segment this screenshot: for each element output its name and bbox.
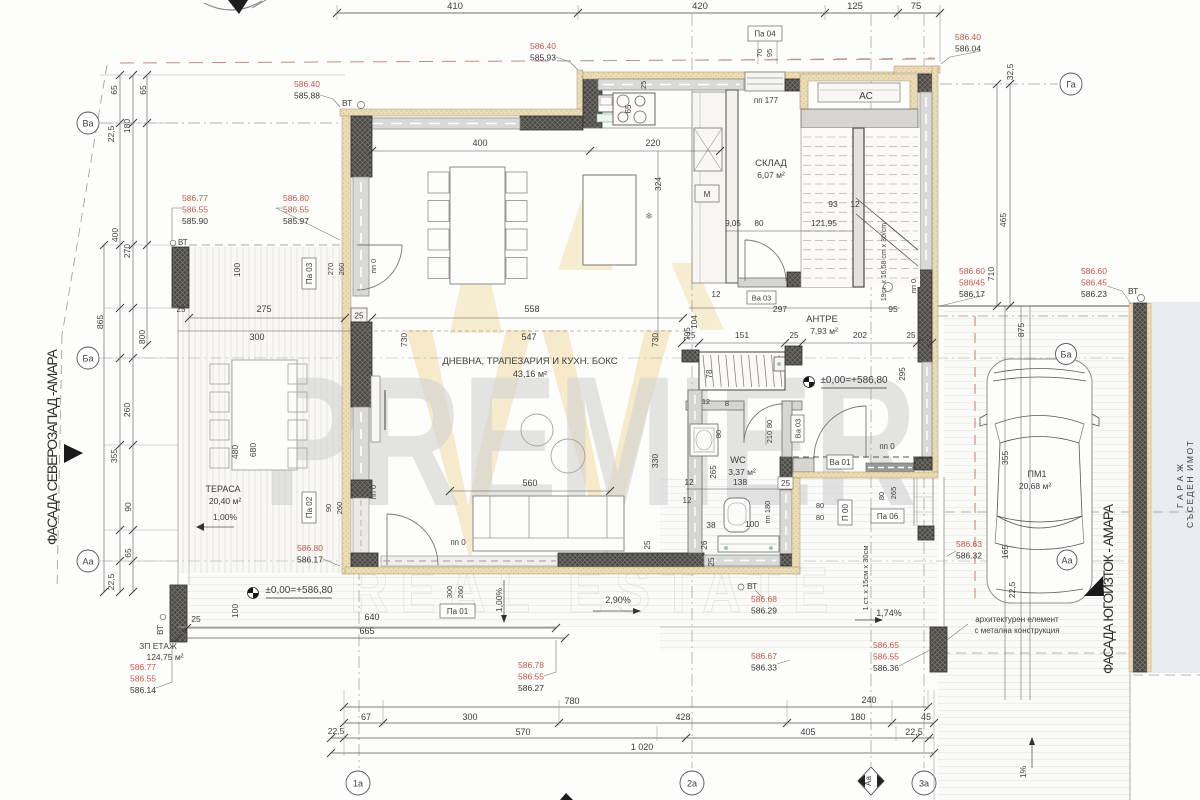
svg-text:300: 300 xyxy=(445,586,454,599)
svg-text:пп 0: пп 0 xyxy=(450,538,466,547)
svg-text:586.77: 586.77 xyxy=(130,662,156,672)
svg-text:12: 12 xyxy=(683,496,692,505)
svg-text:19ст. x 16,58 cm x 30/cm: 19ст. x 16,58 cm x 30/cm xyxy=(881,223,888,301)
svg-text:80: 80 xyxy=(714,430,723,438)
svg-text:270: 270 xyxy=(326,263,335,276)
svg-text:Па 04: Па 04 xyxy=(754,30,776,39)
svg-text:25: 25 xyxy=(790,331,799,340)
svg-text:25: 25 xyxy=(177,305,186,314)
svg-text:ФАСАДА СЕВЕРОЗАПАД -АМАРА: ФАСАДА СЕВЕРОЗАПАД -АМАРА xyxy=(44,348,60,545)
svg-text:586.80: 586.80 xyxy=(283,193,309,203)
svg-text:9,05: 9,05 xyxy=(725,219,741,228)
svg-text:80: 80 xyxy=(755,219,764,228)
svg-text:АС: АС xyxy=(859,91,873,102)
svg-text:пп 0: пп 0 xyxy=(369,259,378,273)
svg-text:Па 02: Па 02 xyxy=(305,496,314,518)
svg-text:124,75 м²: 124,75 м² xyxy=(146,652,183,662)
svg-text:121,95: 121,95 xyxy=(811,218,837,228)
svg-text:Ва 03: Ва 03 xyxy=(794,419,803,439)
svg-text:ДНЕВНА, ТРАПЕЗАРИЯ И КУХН. БОК: ДНЕВНА, ТРАПЕЗАРИЯ И КУХН. БОКС xyxy=(442,356,617,367)
svg-text:7,93 м²: 7,93 м² xyxy=(810,326,838,336)
svg-text:22,5: 22,5 xyxy=(1007,581,1017,598)
svg-text:586.40: 586.40 xyxy=(294,79,320,89)
svg-text:586.68: 586.68 xyxy=(751,594,777,604)
svg-text:Аа: Аа xyxy=(1061,556,1072,566)
svg-text:22,5: 22,5 xyxy=(328,726,345,736)
svg-text:405: 405 xyxy=(800,727,815,737)
svg-text:8: 8 xyxy=(725,399,729,408)
svg-text:260: 260 xyxy=(337,263,346,276)
svg-text:270: 270 xyxy=(122,244,132,258)
svg-text:26: 26 xyxy=(700,540,709,549)
svg-text:640: 640 xyxy=(364,612,379,622)
svg-text:пп 180: пп 180 xyxy=(763,501,772,524)
svg-text:2а: 2а xyxy=(687,779,697,789)
svg-text:22,5: 22,5 xyxy=(106,573,116,590)
svg-text:70: 70 xyxy=(755,49,764,57)
svg-text:25: 25 xyxy=(191,614,201,624)
svg-text:265: 265 xyxy=(889,487,898,500)
svg-text:220: 220 xyxy=(645,138,660,148)
svg-text:100: 100 xyxy=(232,263,242,277)
svg-text:586.33: 586.33 xyxy=(751,663,777,673)
svg-text:1,00%: 1,00% xyxy=(213,512,238,522)
svg-text:СКЛАД: СКЛАД xyxy=(755,158,787,169)
svg-text:585.88: 585.88 xyxy=(294,91,320,101)
svg-text:Ва: Ва xyxy=(82,119,93,129)
svg-text:80: 80 xyxy=(816,513,824,522)
svg-text:20,40 м²: 20,40 м² xyxy=(209,496,241,506)
svg-text:±0,00=+586,80: ±0,00=+586,80 xyxy=(265,585,333,596)
svg-text:25: 25 xyxy=(639,81,648,89)
svg-text:6,07 м²: 6,07 м² xyxy=(757,170,785,180)
svg-text:Ба: Ба xyxy=(83,354,94,364)
svg-text:586.80: 586.80 xyxy=(297,543,323,553)
svg-text:480: 480 xyxy=(230,445,240,459)
svg-text:355: 355 xyxy=(1000,451,1010,465)
svg-text:558: 558 xyxy=(524,304,539,314)
svg-text:Аа: Аа xyxy=(864,776,873,786)
svg-text:Ва 03: Ва 03 xyxy=(752,294,772,303)
svg-text:586.14: 586.14 xyxy=(130,685,156,695)
svg-text:75: 75 xyxy=(911,1,922,12)
svg-text:165: 165 xyxy=(1000,545,1010,559)
svg-text:570: 570 xyxy=(515,727,530,737)
svg-text:324: 324 xyxy=(653,177,663,191)
svg-text:297: 297 xyxy=(773,304,787,314)
svg-text:586.63: 586.63 xyxy=(956,539,982,549)
svg-text:420: 420 xyxy=(692,1,708,12)
svg-text:586.60: 586.60 xyxy=(1081,266,1107,276)
svg-text:22,5: 22,5 xyxy=(106,125,116,142)
svg-text:151: 151 xyxy=(735,330,749,340)
svg-text:ВТ: ВТ xyxy=(342,98,352,108)
svg-text:800: 800 xyxy=(137,330,147,344)
svg-text:275: 275 xyxy=(256,304,271,314)
svg-text:ТЕРАСА: ТЕРАСА xyxy=(205,484,240,494)
svg-text:265: 265 xyxy=(709,465,718,479)
svg-text:25: 25 xyxy=(907,331,916,340)
svg-text:780: 780 xyxy=(564,696,579,706)
svg-text:586.55: 586.55 xyxy=(182,205,208,215)
svg-text:М: М xyxy=(704,190,711,199)
svg-text:Па 03: Па 03 xyxy=(305,262,314,284)
svg-text:Га: Га xyxy=(1066,80,1075,90)
svg-text:12: 12 xyxy=(850,199,860,209)
svg-text:1,74%: 1,74% xyxy=(876,608,902,618)
svg-text:WC: WC xyxy=(730,455,746,466)
svg-text:586.55: 586.55 xyxy=(518,672,544,682)
svg-text:80: 80 xyxy=(816,501,824,510)
svg-text:80: 80 xyxy=(877,492,886,500)
svg-text:25: 25 xyxy=(355,312,364,321)
svg-text:93: 93 xyxy=(828,199,838,209)
svg-text:586.67: 586.67 xyxy=(751,651,777,661)
svg-text:1%: 1% xyxy=(1018,765,1028,778)
svg-text:300: 300 xyxy=(249,332,264,342)
svg-text:586.36: 586.36 xyxy=(873,663,899,673)
svg-text:125: 125 xyxy=(847,1,863,12)
svg-text:Па 06: Па 06 xyxy=(877,512,899,521)
svg-text:32,5: 32,5 xyxy=(1005,63,1015,80)
svg-text:пп 0: пп 0 xyxy=(909,279,918,293)
svg-text:45: 45 xyxy=(921,712,931,722)
svg-text:100: 100 xyxy=(230,604,240,618)
svg-text:пп 177: пп 177 xyxy=(754,96,779,105)
svg-text:586.17: 586.17 xyxy=(297,555,323,565)
svg-text:260: 260 xyxy=(122,403,132,417)
svg-text:547: 547 xyxy=(521,332,536,342)
svg-text:38: 38 xyxy=(706,520,716,530)
svg-text:43,16 м²: 43,16 м² xyxy=(513,369,547,379)
svg-text:260: 260 xyxy=(456,586,465,599)
svg-text:12: 12 xyxy=(702,397,710,406)
svg-text:586.40: 586.40 xyxy=(530,41,556,51)
svg-text:95: 95 xyxy=(888,304,898,314)
svg-text:ВТ: ВТ xyxy=(747,581,757,591)
svg-text:730: 730 xyxy=(399,333,409,347)
svg-text:355: 355 xyxy=(109,449,119,463)
svg-text:1а: 1а xyxy=(353,779,363,789)
svg-text:330: 330 xyxy=(650,454,660,468)
svg-text:65: 65 xyxy=(123,548,133,558)
svg-text:2,90%: 2,90% xyxy=(605,595,631,605)
svg-text:586.55: 586.55 xyxy=(873,652,899,662)
svg-text:1 020: 1 020 xyxy=(631,742,654,752)
svg-text:Ба: Ба xyxy=(1061,350,1072,360)
svg-text:25: 25 xyxy=(643,540,652,549)
svg-text:П 00: П 00 xyxy=(841,504,850,521)
svg-text:665: 665 xyxy=(359,626,374,636)
svg-text:Аа: Аа xyxy=(82,557,93,567)
svg-text:586.65: 586.65 xyxy=(873,640,899,650)
svg-text:Ва 01: Ва 01 xyxy=(830,458,851,467)
svg-text:65: 65 xyxy=(138,85,148,95)
svg-text:465: 465 xyxy=(998,213,1008,227)
svg-text:±0,00=+586,80: ±0,00=+586,80 xyxy=(820,375,888,386)
svg-text:586.77: 586.77 xyxy=(182,193,208,203)
svg-text:586.27: 586.27 xyxy=(518,683,544,693)
svg-text:пп 0: пп 0 xyxy=(879,442,895,451)
svg-text:95: 95 xyxy=(765,49,774,57)
svg-text:240: 240 xyxy=(861,695,876,705)
svg-text:710: 710 xyxy=(986,267,996,281)
svg-text:22,5: 22,5 xyxy=(905,727,923,737)
svg-text:67: 67 xyxy=(361,712,371,722)
svg-text:586.55: 586.55 xyxy=(283,205,309,215)
svg-text:180: 180 xyxy=(850,712,865,722)
svg-text:586.17: 586.17 xyxy=(959,289,985,299)
svg-text:875: 875 xyxy=(1016,323,1026,337)
svg-text:архитектурен елемент: архитектурен елемент xyxy=(975,615,1059,624)
svg-text:586.60: 586.60 xyxy=(959,266,985,276)
svg-text:с метална конструкция: с метална конструкция xyxy=(974,626,1059,635)
svg-text:104: 104 xyxy=(690,315,699,329)
svg-text:12: 12 xyxy=(712,290,721,299)
svg-text:202: 202 xyxy=(853,330,867,340)
svg-text:210: 210 xyxy=(765,431,774,444)
svg-text:410: 410 xyxy=(447,1,463,12)
svg-text:❄: ❄ xyxy=(645,211,653,221)
svg-text:ВТ: ВТ xyxy=(1128,286,1138,296)
svg-text:260: 260 xyxy=(335,502,344,515)
svg-text:586/45: 586/45 xyxy=(959,278,985,288)
svg-text:585.97: 585.97 xyxy=(283,216,309,226)
svg-text:ПМ1: ПМ1 xyxy=(1028,469,1047,479)
svg-text:865: 865 xyxy=(95,315,105,329)
svg-text:586.23: 586.23 xyxy=(1081,289,1107,299)
svg-text:ВТ: ВТ xyxy=(178,238,188,247)
svg-text:25: 25 xyxy=(781,479,790,488)
svg-text:180: 180 xyxy=(122,119,132,133)
svg-text:25: 25 xyxy=(707,557,716,566)
svg-text:1 ст. x 15см x 30см: 1 ст. x 15см x 30см xyxy=(861,545,870,610)
svg-text:90: 90 xyxy=(123,502,133,512)
svg-text:СЪСЕДЕН ИМОТ: СЪСЕДЕН ИМОТ xyxy=(1185,441,1195,528)
svg-text:пп 0: пп 0 xyxy=(369,485,378,499)
svg-text:Па 01: Па 01 xyxy=(447,607,469,616)
svg-text:138: 138 xyxy=(733,477,747,487)
svg-text:586.29: 586.29 xyxy=(751,606,777,616)
svg-text:100: 100 xyxy=(745,519,759,529)
svg-text:730: 730 xyxy=(650,333,660,347)
svg-text:586.45: 586.45 xyxy=(1081,278,1107,288)
svg-text:1,00%: 1,00% xyxy=(494,588,504,613)
svg-text:20,68 м²: 20,68 м² xyxy=(1019,481,1051,491)
svg-text:400: 400 xyxy=(472,138,487,148)
svg-text:65: 65 xyxy=(624,104,633,113)
svg-text:585.90: 585.90 xyxy=(182,216,208,226)
svg-text:80: 80 xyxy=(765,420,774,428)
svg-text:680: 680 xyxy=(248,443,258,457)
svg-text:300: 300 xyxy=(462,712,477,722)
svg-text:586.55: 586.55 xyxy=(130,674,156,684)
svg-text:585.93: 585.93 xyxy=(530,53,556,63)
svg-text:65: 65 xyxy=(109,85,119,95)
svg-text:ВТ: ВТ xyxy=(156,625,165,635)
svg-text:795: 795 xyxy=(683,327,692,341)
svg-text:428: 428 xyxy=(675,712,690,722)
svg-text:560: 560 xyxy=(522,478,537,488)
svg-text:295: 295 xyxy=(898,367,907,381)
svg-text:586.32: 586.32 xyxy=(956,551,982,561)
svg-text:3а: 3а xyxy=(919,779,929,789)
svg-text:ЗП ЕТАЖ: ЗП ЕТАЖ xyxy=(139,641,177,651)
svg-text:90: 90 xyxy=(324,504,333,512)
svg-text:12: 12 xyxy=(685,478,694,487)
svg-text:400: 400 xyxy=(110,228,120,242)
svg-text:78: 78 xyxy=(705,369,714,378)
svg-text:586.40: 586.40 xyxy=(955,32,981,42)
svg-text:АНТРЕ: АНТРЕ xyxy=(806,314,838,325)
svg-text:3,37 м²: 3,37 м² xyxy=(728,467,756,477)
svg-text:586.78: 586.78 xyxy=(518,660,544,670)
